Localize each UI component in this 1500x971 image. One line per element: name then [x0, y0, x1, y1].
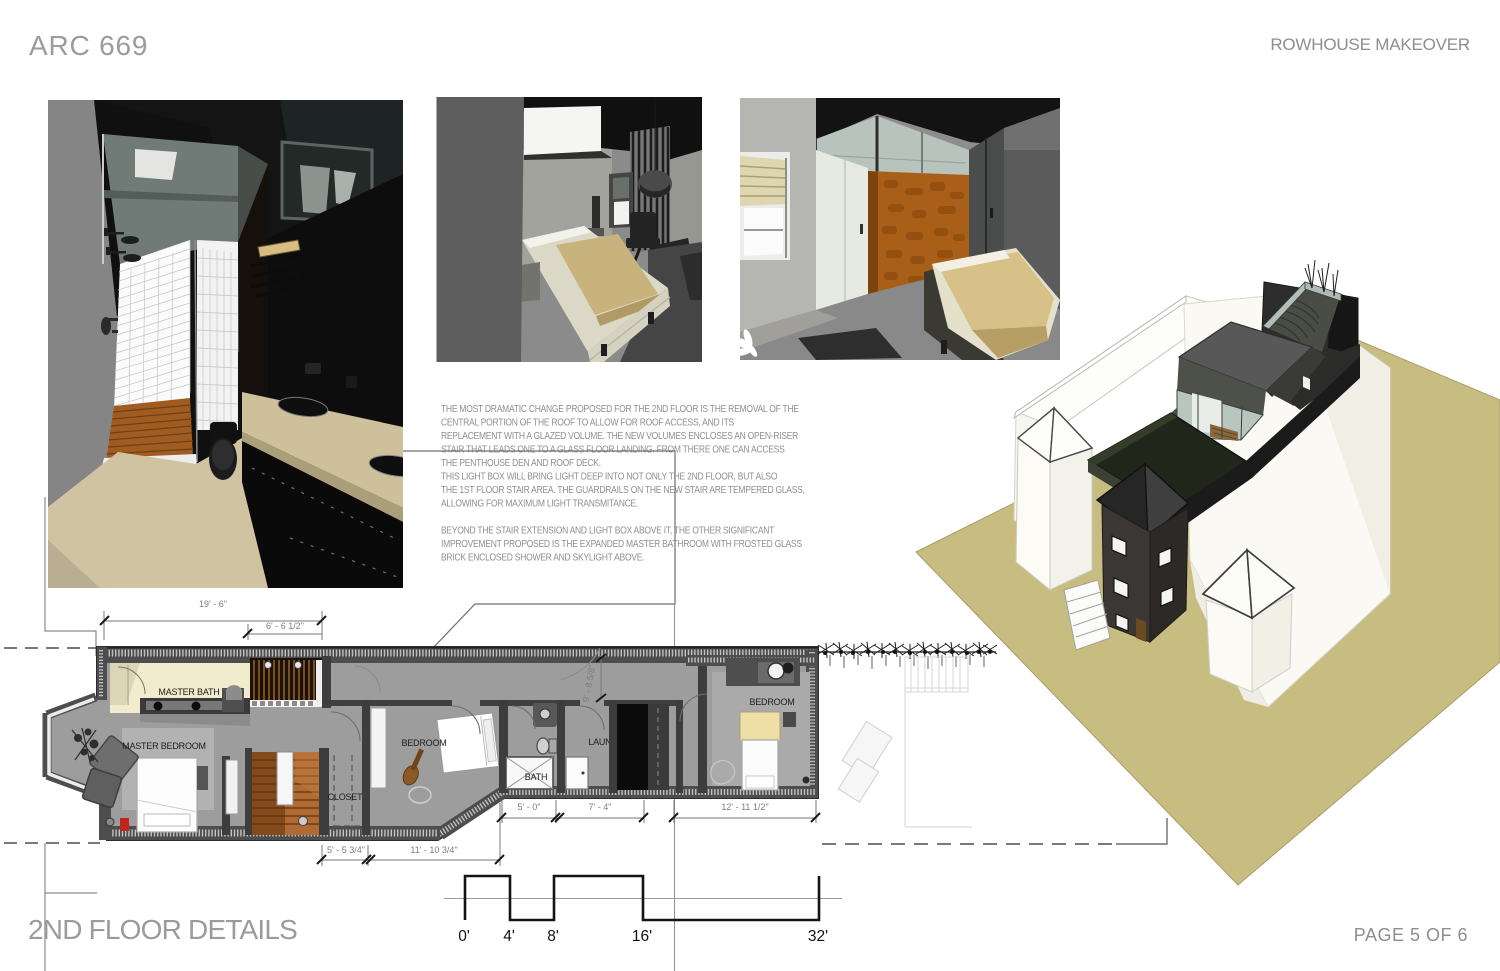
- svg-text:CENTRAL PORTION OF THE ROOF TO: CENTRAL PORTION OF THE ROOF TO ALLOW FOR…: [441, 417, 734, 428]
- svg-text:BEDROOM: BEDROOM: [401, 738, 446, 748]
- svg-text:ARC 669: ARC 669: [29, 30, 148, 61]
- svg-text:CLOSET: CLOSET: [328, 792, 364, 802]
- svg-text:REPLACEMENT WITH A GLAZED VOLU: REPLACEMENT WITH A GLAZED VOLUME. THE NE…: [441, 430, 799, 441]
- svg-text:THE 1ST FLOOR STAIR AREA. THE: THE 1ST FLOOR STAIR AREA. THE GUARDRAILS…: [441, 484, 805, 495]
- svg-text:5' - 0": 5' - 0": [518, 802, 541, 812]
- svg-text:BEYOND THE STAIR EXTENSION AND: BEYOND THE STAIR EXTENSION AND LIGHT BOX…: [441, 525, 775, 536]
- svg-text:2ND FLOOR DETAILS: 2ND FLOOR DETAILS: [28, 914, 297, 945]
- svg-text:4': 4': [503, 928, 515, 945]
- svg-text:THE MOST DRAMATIC CHANGE PROPO: THE MOST DRAMATIC CHANGE PROPOSED FOR TH…: [441, 403, 799, 414]
- svg-text:5' - 5 3/4": 5' - 5 3/4": [327, 845, 365, 855]
- svg-text:6' - 6 1/2": 6' - 6 1/2": [266, 621, 304, 631]
- svg-text:19' - 6": 19' - 6": [199, 599, 227, 609]
- svg-text:BATH: BATH: [525, 772, 548, 782]
- svg-text:32': 32': [808, 928, 828, 945]
- svg-text:0': 0': [458, 928, 470, 945]
- svg-text:7' - 4": 7' - 4": [589, 802, 612, 812]
- svg-text:MASTER BATH: MASTER BATH: [158, 687, 219, 697]
- svg-text:ROWHOUSE MAKEOVER: ROWHOUSE MAKEOVER: [1270, 35, 1470, 54]
- svg-text:8': 8': [547, 928, 559, 945]
- svg-text:THIS LIGHT BOX WILL BRING LIGH: THIS LIGHT BOX WILL BRING LIGHT DEEP INT…: [441, 471, 777, 482]
- svg-text:STAIR THAT LEADS ONE TO A GLAS: STAIR THAT LEADS ONE TO A GLASS FLOOR LA…: [441, 444, 785, 455]
- svg-text:BEDROOM: BEDROOM: [749, 697, 794, 707]
- svg-text:16': 16': [632, 928, 652, 945]
- svg-text:BRICK ENCLOSED SHOWER AND SKYL: BRICK ENCLOSED SHOWER AND SKYLIGHT ABOVE…: [441, 552, 644, 563]
- svg-text:11' - 10 3/4": 11' - 10 3/4": [410, 845, 457, 855]
- svg-text:PAGE 5 OF 6: PAGE 5 OF 6: [1354, 925, 1468, 945]
- svg-text:MASTER BEDROOM: MASTER BEDROOM: [122, 741, 206, 751]
- svg-text:IMPROVEMENT PROPOSED IS THE EX: IMPROVEMENT PROPOSED IS THE EXPANDED MAS…: [441, 538, 802, 549]
- svg-text:ALLOWING FOR MAXIMUM LIGHT TRA: ALLOWING FOR MAXIMUM LIGHT TRANSMITANCE.: [441, 498, 638, 509]
- svg-text:12' - 11 1/2": 12' - 11 1/2": [721, 802, 768, 812]
- svg-text:THE PENTHOUSE DEN AND ROOF DEC: THE PENTHOUSE DEN AND ROOF DECK.: [441, 457, 601, 468]
